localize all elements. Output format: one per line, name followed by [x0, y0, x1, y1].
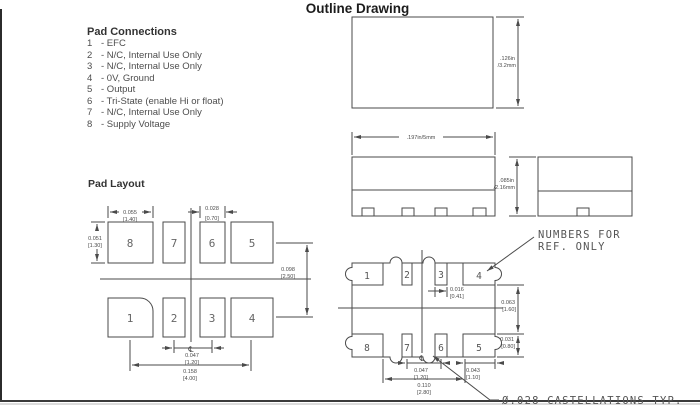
dim-label: 0.028 [205, 206, 219, 212]
front-view-drawing: .197in/5mm [352, 132, 495, 216]
dim-label-side-view-height-in: .085in [499, 178, 514, 184]
pad-number-1: 1 [127, 312, 134, 325]
pad-number-4: 4 [476, 271, 482, 282]
dim-label: 0.047 [185, 353, 199, 359]
centerline-symbol: ℄ [419, 354, 425, 363]
note-numbers-ref: REF. ONLY [538, 241, 606, 253]
note-numbers-ref: NUMBERS FOR [538, 229, 621, 241]
dim-label: 0.047 [414, 368, 428, 374]
dim-label: 0.158 [183, 369, 197, 375]
dim-label-top-view-height-mm: /3.2mm [498, 63, 517, 69]
dim-label: [2.50] [281, 274, 295, 280]
pad-number-1: 1 [364, 271, 370, 282]
dim-label: 0.055 [123, 210, 137, 216]
dim-label: [4.00] [183, 376, 197, 382]
pad-number-3: 3 [438, 270, 444, 281]
pad-layout-drawing: ℄ 8 7 6 5 1 2 3 4 0.055 [1.40] 0.028 [0.… [88, 206, 313, 382]
pad-number-8: 8 [364, 343, 370, 354]
pad-number-5: 5 [476, 343, 482, 354]
dim-label: [0.70] [205, 216, 219, 222]
dim-label: 0.043 [466, 368, 480, 374]
pad-number-8: 8 [127, 237, 134, 250]
dim-label: 0.031 [500, 337, 514, 343]
top-view-drawing: .126in /3.2mm [352, 17, 524, 108]
bottom-view-drawing: ℄ 1 2 3 4 8 7 6 5 0.016 [0.41] 0.063 [1.… [338, 229, 683, 407]
dim-label: [1.40] [123, 217, 137, 223]
dim-label-side-view-height-mm: /2.16mm [494, 185, 516, 191]
side-view-drawing: .085in /2.16mm [494, 157, 632, 216]
dim-label: [1.60] [502, 307, 516, 313]
pad-number-2: 2 [404, 270, 410, 281]
note-castellations: Ø.028 CASTELLATIONS TYP. [502, 395, 683, 407]
dim-label-front-view-width: .197in/5mm [407, 135, 436, 141]
dim-label: 0.098 [281, 267, 295, 273]
dim-label-top-view-height-in: .126in [500, 56, 515, 62]
pad-number-7: 7 [171, 237, 178, 250]
dim-label: 0.110 [417, 383, 430, 389]
dim-label: 0.016 [450, 287, 464, 293]
dim-label: [1.20] [414, 375, 428, 381]
pad-number-5: 5 [249, 237, 256, 250]
dim-label: 0.063 [501, 300, 515, 306]
dim-label: [2.80] [417, 390, 431, 396]
pad-number-6: 6 [438, 343, 444, 354]
dim-label: [1.30] [88, 243, 102, 249]
outline-drawing-canvas: .126in /3.2mm .197in/5mm .085in /2.16mm [0, 0, 700, 413]
pad-number-7: 7 [404, 343, 410, 354]
pad-number-3: 3 [209, 312, 216, 325]
pad-number-2: 2 [171, 312, 178, 325]
dim-label: [1.10] [466, 375, 480, 381]
dim-label: [0.41] [450, 294, 464, 300]
dim-label: [0.80] [501, 344, 515, 350]
pad-number-6: 6 [209, 237, 216, 250]
pad-number-4: 4 [249, 312, 256, 325]
dim-label: 0.051 [88, 236, 102, 242]
